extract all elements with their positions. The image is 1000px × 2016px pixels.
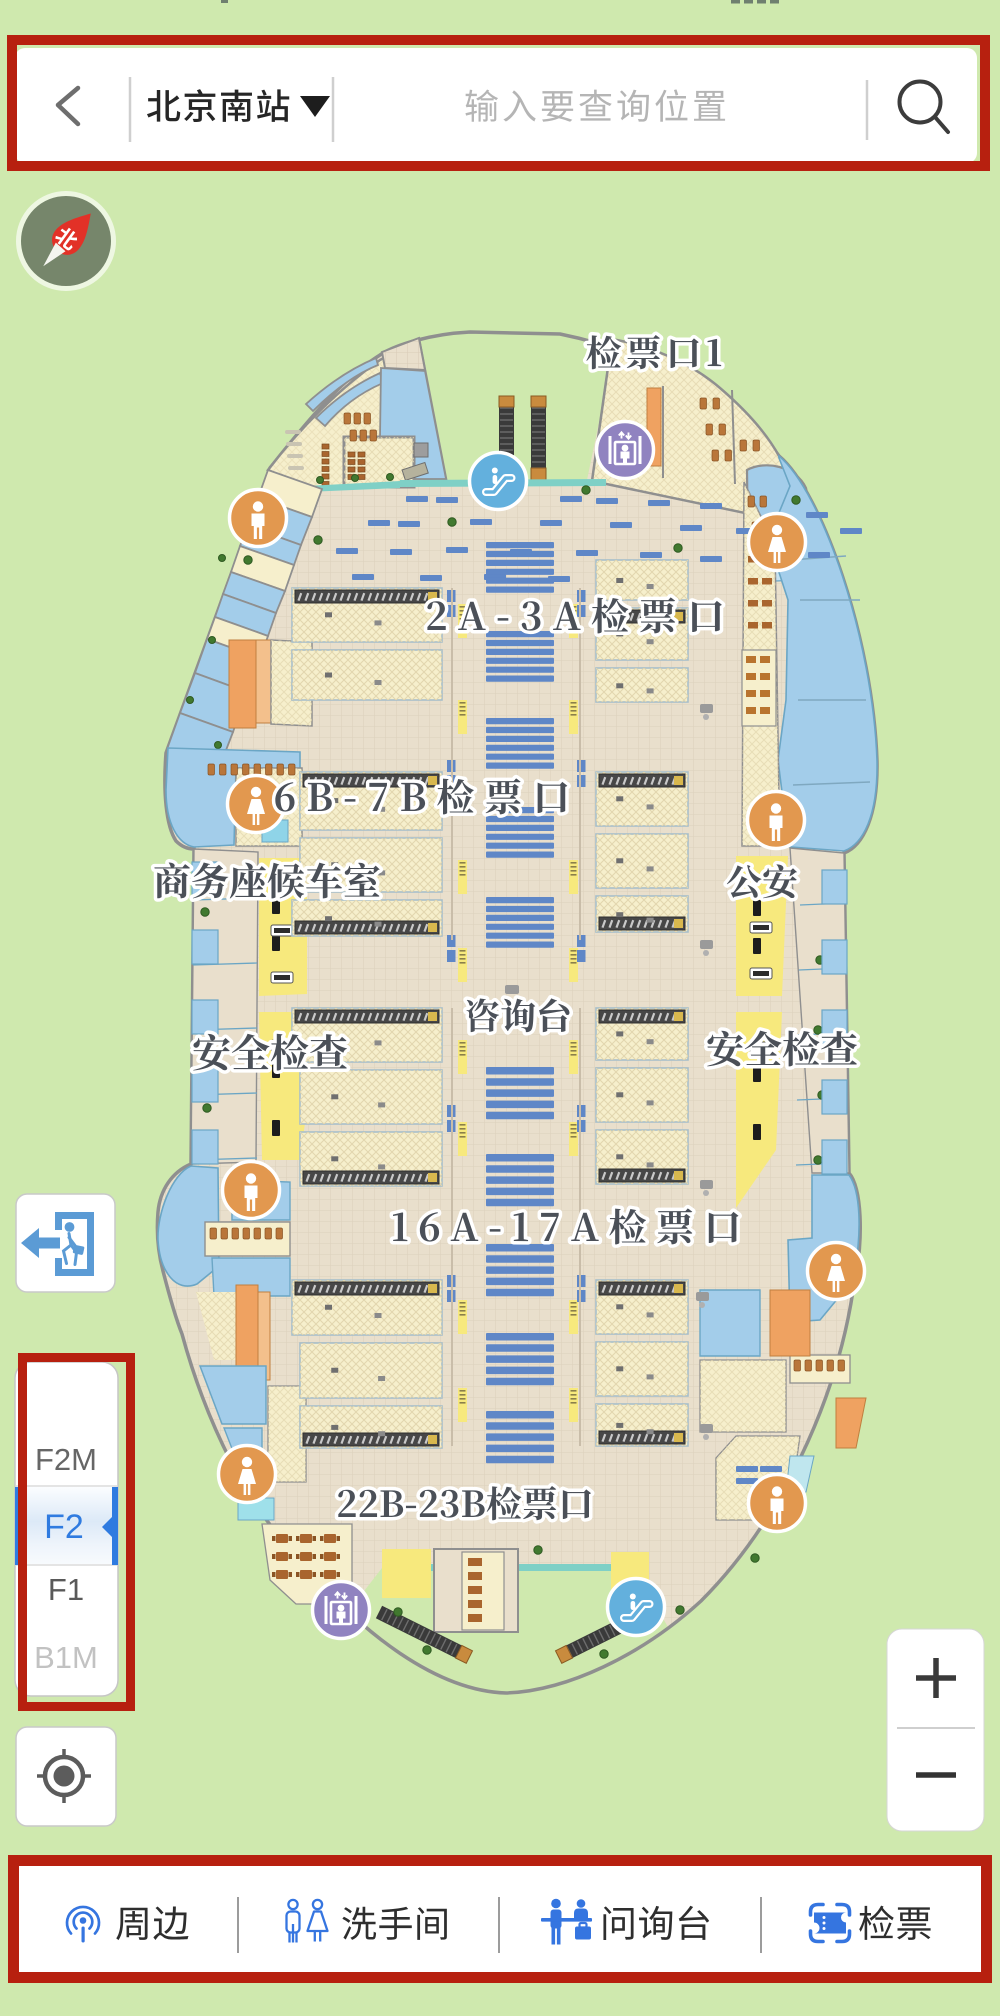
svg-text:F1: F1 [48,1572,84,1607]
svg-text:F2: F2 [44,1508,84,1546]
svg-text:F2M: F2M [35,1442,97,1477]
svg-text:B1M: B1M [34,1640,98,1675]
